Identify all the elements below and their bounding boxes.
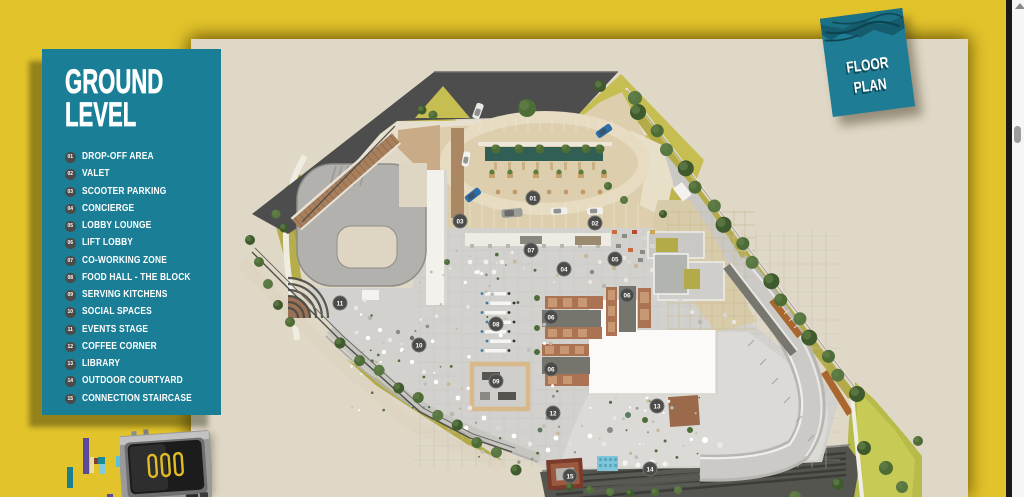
svg-text:13: 13 xyxy=(653,403,661,410)
svg-text:01: 01 xyxy=(529,195,537,202)
svg-text:02: 02 xyxy=(591,220,599,227)
svg-text:05: 05 xyxy=(611,256,619,263)
svg-text:15: 15 xyxy=(566,473,574,480)
svg-text:07: 07 xyxy=(527,247,535,254)
svg-text:09: 09 xyxy=(492,378,500,385)
svg-text:03: 03 xyxy=(456,218,464,225)
svg-text:10: 10 xyxy=(415,342,423,349)
svg-text:14: 14 xyxy=(646,466,654,473)
svg-text:08: 08 xyxy=(492,321,500,328)
svg-text:12: 12 xyxy=(549,410,557,417)
svg-text:06: 06 xyxy=(547,366,555,373)
svg-text:06: 06 xyxy=(623,292,631,299)
svg-text:11: 11 xyxy=(337,300,344,307)
svg-text:06: 06 xyxy=(547,314,555,321)
svg-text:04: 04 xyxy=(560,266,568,273)
